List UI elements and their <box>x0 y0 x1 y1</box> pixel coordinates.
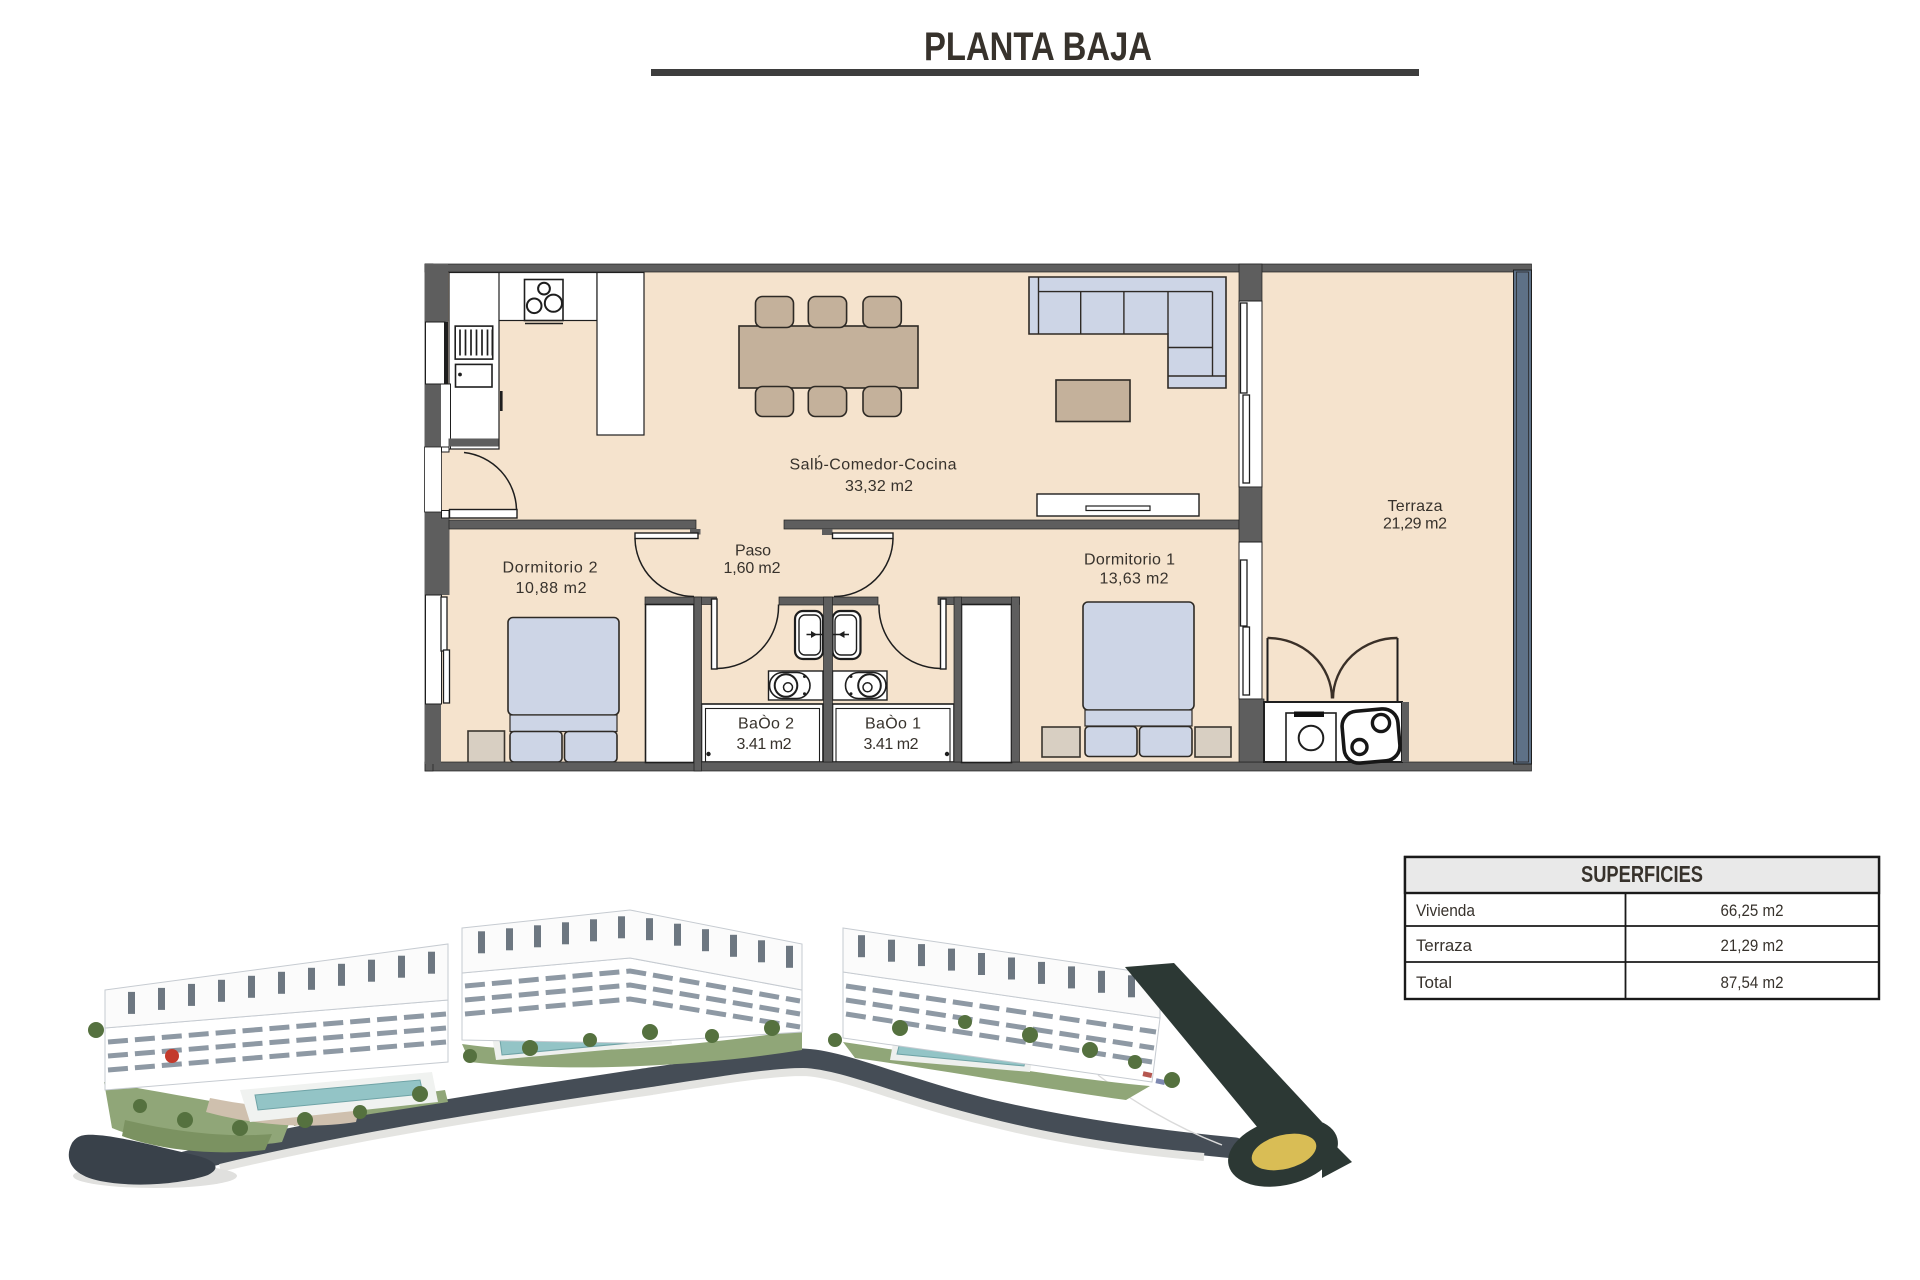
svg-text:PLANTA BAJA: PLANTA BAJA <box>924 25 1152 69</box>
svg-text:BaÒo 1: BaÒo 1 <box>865 714 921 733</box>
svg-text:SUPERFICIES: SUPERFICIES <box>1581 861 1703 887</box>
svg-text:Total: Total <box>1416 973 1452 992</box>
svg-text:21,29 m2: 21,29 m2 <box>1721 936 1784 955</box>
svg-text:87,54 m2: 87,54 m2 <box>1721 973 1784 992</box>
svg-text:3.41 m2: 3.41 m2 <box>737 736 792 753</box>
svg-text:3.41 m2: 3.41 m2 <box>864 736 919 753</box>
svg-text:Salb́-Comedor-Cocina: Salb́-Comedor-Cocina <box>790 454 957 474</box>
svg-text:33,32 m2: 33,32 m2 <box>845 478 913 495</box>
svg-text:BaÒo 2: BaÒo 2 <box>738 714 794 733</box>
svg-text:13,63 m2: 13,63 m2 <box>1100 571 1169 588</box>
svg-text:1,60 m2: 1,60 m2 <box>724 560 781 577</box>
svg-text:10,88 m2: 10,88 m2 <box>516 580 587 597</box>
svg-text:66,25 m2: 66,25 m2 <box>1721 901 1784 920</box>
svg-text:Dormitorio 1: Dormitorio 1 <box>1084 552 1175 569</box>
svg-text:Dormitorio 2: Dormitorio 2 <box>503 560 598 577</box>
svg-text:21,29 m2: 21,29 m2 <box>1383 516 1447 533</box>
svg-text:Paso: Paso <box>735 543 771 560</box>
svg-text:Terraza: Terraza <box>1388 498 1443 515</box>
svg-text:Vivienda: Vivienda <box>1416 901 1475 920</box>
svg-text:Terraza: Terraza <box>1416 936 1473 955</box>
